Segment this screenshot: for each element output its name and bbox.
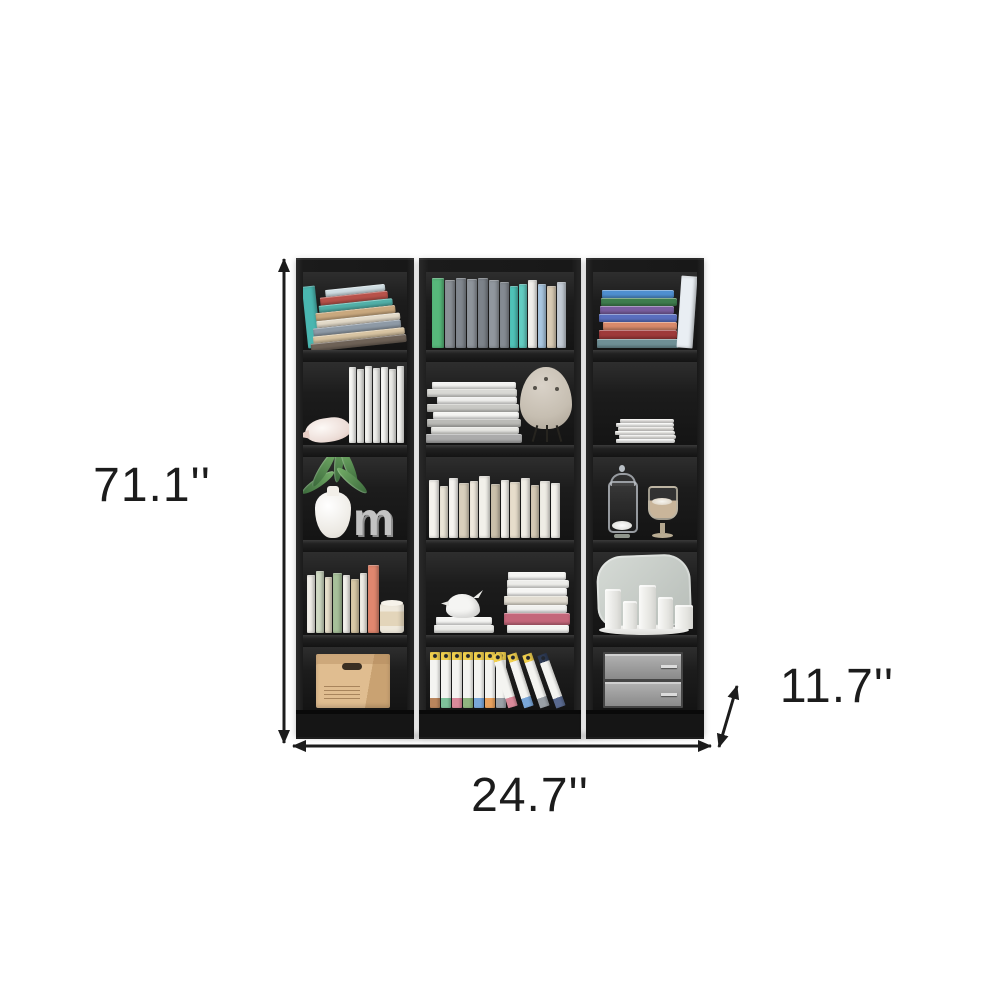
- book-spine: [431, 427, 519, 434]
- middle-shelf-4: [426, 552, 574, 635]
- shelf-board: [426, 350, 574, 362]
- book-spine: [557, 282, 566, 348]
- book-spine: [491, 484, 500, 538]
- book-spine: [343, 575, 350, 633]
- book-spine: [519, 284, 527, 348]
- bookcase-set: m: [296, 258, 704, 735]
- book-spine: [316, 571, 324, 633]
- jar-base: [614, 534, 630, 538]
- cardboard-storage-box: [316, 654, 390, 708]
- lamp-leg: [546, 425, 548, 442]
- candle-jar: [380, 603, 404, 633]
- right-shelf-3: [593, 457, 697, 540]
- book-spine: [357, 369, 364, 443]
- lamp-leg: [556, 425, 563, 442]
- shelf-board: [426, 445, 574, 457]
- middle-shelf-1: [426, 272, 574, 350]
- conch-shell: [304, 415, 353, 445]
- plinth: [296, 710, 414, 739]
- book-spine: [489, 280, 499, 348]
- shelf-board: [303, 540, 407, 552]
- book-spine: [368, 565, 379, 633]
- goblet-foot: [652, 533, 673, 538]
- book-spine: [620, 419, 674, 423]
- pillar-candle: [605, 589, 621, 629]
- book-spine: [360, 573, 367, 633]
- plinth: [419, 710, 581, 739]
- lamp-shade: [520, 367, 572, 429]
- book-spine: [351, 579, 359, 633]
- book-spine: [445, 280, 455, 348]
- book-spine: [547, 286, 556, 348]
- book-spine: [432, 382, 516, 389]
- book-spine: [507, 588, 567, 596]
- paper-stack: [615, 419, 675, 443]
- white-standing-book: [679, 276, 695, 348]
- leaning-binders: [508, 651, 572, 707]
- book-spine: [434, 625, 494, 633]
- book-spine: [510, 286, 518, 348]
- book-spine: [333, 573, 342, 633]
- left-shelf-5: [303, 647, 407, 710]
- right-shelf-2: [593, 362, 697, 445]
- book-spine: [478, 278, 488, 348]
- pastel-book-row: [307, 565, 379, 633]
- book-spine: [500, 282, 509, 348]
- book-spine: [397, 366, 404, 443]
- book-spine: [459, 483, 469, 538]
- book-spine: [479, 476, 490, 538]
- middle-shelf-3: [426, 457, 574, 540]
- book-spine: [597, 339, 679, 348]
- bookcase-unit-right: [586, 258, 704, 735]
- white-cream-book-row: [429, 476, 560, 538]
- shelf-board: [303, 635, 407, 647]
- jar-pebbles: [612, 521, 632, 530]
- book-spine: [507, 580, 569, 588]
- pedestal-jar: [647, 482, 677, 538]
- binder-spine: [430, 652, 440, 708]
- book-spine: [616, 439, 675, 443]
- left-shelf-1: [303, 272, 407, 350]
- metal-drawer-boxes: [603, 652, 683, 708]
- pillar-candle: [675, 605, 693, 629]
- bird-figurine: [446, 594, 480, 618]
- book-spine: [307, 575, 315, 633]
- book-spine: [449, 478, 458, 538]
- leaning-book-stack: [304, 282, 407, 350]
- shelf-board: [426, 540, 574, 552]
- bookcase-unit-middle: [419, 258, 581, 735]
- book-spine: [373, 368, 380, 443]
- egg-table-lamp: [520, 367, 572, 443]
- book-spine: [508, 572, 566, 580]
- book-spine: [381, 367, 388, 443]
- shelf-board: [593, 350, 697, 362]
- width-dimension-label: 24.7'': [410, 772, 650, 820]
- book-spine: [433, 412, 519, 419]
- book-spine: [603, 322, 677, 330]
- middle-shelf-5: [426, 647, 574, 710]
- book-spine: [600, 306, 674, 314]
- book-spine: [504, 596, 568, 605]
- book-spine: [507, 625, 569, 633]
- book-spine: [429, 480, 439, 538]
- jar-finial: [619, 465, 625, 472]
- metal-drawer: [605, 654, 681, 679]
- height-dimension-label: 71.1'': [52, 462, 252, 510]
- shelf-board: [593, 445, 697, 457]
- lamp-leg: [532, 425, 539, 442]
- book-spine: [551, 483, 560, 538]
- decorative-letter-m: m: [353, 502, 394, 538]
- book-spine: [504, 613, 570, 625]
- book-spine: [467, 279, 477, 348]
- book-spine: [599, 314, 677, 322]
- book-spine: [507, 605, 567, 613]
- mixed-book-row: [432, 278, 566, 348]
- middle-shelf-2: [426, 362, 574, 445]
- metal-drawer: [605, 682, 681, 707]
- colorful-book-stack: [597, 290, 679, 348]
- shelf-board: [303, 350, 407, 362]
- right-shelf-5: [593, 647, 697, 710]
- book-spine: [618, 427, 674, 431]
- apothecary-jar: [605, 464, 639, 538]
- product-dimension-diagram: 71.1'' 24.7'' 11.7'': [0, 0, 1000, 1000]
- book-spine: [427, 419, 521, 427]
- book-spine: [619, 435, 676, 439]
- binder-spine: [452, 652, 462, 708]
- shelf-board: [426, 635, 574, 647]
- book-spine: [389, 369, 396, 443]
- pillar-candle: [623, 601, 637, 629]
- book-spine: [349, 367, 356, 443]
- book-spine: [365, 366, 372, 443]
- shelf-board: [593, 540, 697, 552]
- book-spine: [440, 486, 448, 538]
- right-shelf-4: [593, 552, 697, 635]
- book-stack-with-pink-book: [504, 572, 570, 633]
- book-spine: [432, 278, 444, 348]
- book-spine: [602, 290, 674, 298]
- book-spine: [521, 478, 530, 538]
- pillar-candle: [658, 597, 673, 629]
- book-spine: [426, 434, 522, 443]
- pillar-candles: [605, 585, 693, 629]
- depth-dimension-label: 11.7'': [737, 663, 937, 711]
- magazine-stack: [426, 382, 522, 443]
- book-spine: [510, 482, 520, 538]
- shelf-board: [593, 635, 697, 647]
- book-spine: [427, 404, 519, 412]
- book-spine: [538, 284, 546, 348]
- book-spine: [528, 280, 537, 348]
- book-spine: [427, 389, 517, 397]
- book-spine: [540, 481, 550, 538]
- flat-books-under-bird: [434, 617, 494, 633]
- book-spine: [677, 276, 697, 349]
- shelf-board: [303, 445, 407, 457]
- book-spine: [437, 397, 517, 404]
- depth-arrow: [719, 686, 737, 747]
- left-shelf-4: [303, 552, 407, 635]
- book-spine: [531, 485, 539, 538]
- binder-spine: [463, 652, 473, 708]
- bookcase-unit-left: m: [296, 258, 414, 735]
- pillar-candle: [639, 585, 656, 629]
- binder-spine: [474, 652, 484, 708]
- right-shelf-1: [593, 272, 697, 350]
- book-spine: [470, 481, 478, 538]
- left-shelf-2: [303, 362, 407, 445]
- binder-spine: [441, 652, 451, 708]
- book-spine: [456, 278, 466, 348]
- white-paperback-row: [349, 366, 404, 443]
- book-spine: [599, 330, 677, 339]
- book-spine: [325, 577, 332, 633]
- book-spine: [501, 480, 509, 538]
- book-spine: [601, 298, 677, 306]
- goblet-stem: [660, 523, 665, 533]
- left-shelf-3: m: [303, 457, 407, 540]
- book-spine: [436, 617, 492, 625]
- goblet-pebbles: [652, 498, 672, 505]
- white-vase: [315, 492, 351, 538]
- plinth: [586, 710, 704, 739]
